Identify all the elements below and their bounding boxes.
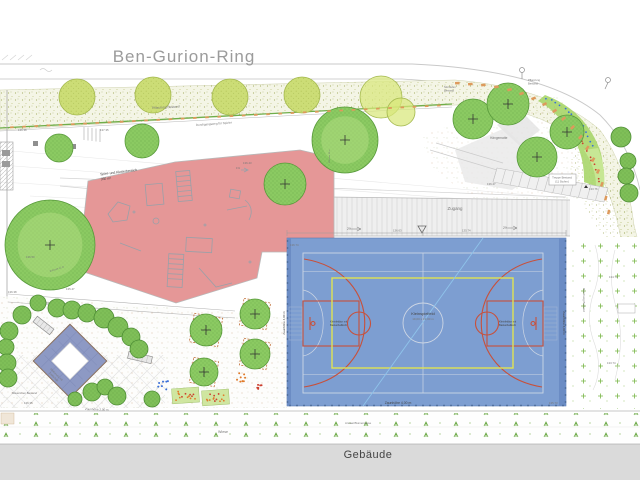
bush [30, 295, 46, 311]
haengematte-label: Hängematte [490, 136, 508, 140]
maeuerchen-label: Mäuerchen Bestand [12, 391, 37, 395]
svg-text:136.35: 136.35 [24, 401, 33, 405]
bush [68, 392, 82, 406]
slope-label-b: 2% [503, 226, 508, 230]
ansaat-label: Ansaat Blumenwiese [345, 421, 372, 425]
bush [0, 369, 17, 387]
south-meadow: Zaunhöhe 2,00 m Wiese Ansaat Blumenwiese [0, 407, 640, 442]
svg-text:136.38: 136.38 [8, 290, 17, 294]
bush [108, 387, 126, 405]
bush [620, 184, 638, 202]
svg-text:136.74: 136.74 [290, 243, 299, 247]
court-fence-right-label: Zaunhöhe 4,00 m [562, 311, 566, 335]
tree [387, 98, 415, 126]
svg-text:136.50: 136.50 [26, 255, 35, 259]
sports-court: Kleinspielfeld 19,00 x 13,00 m Kleinfeld… [282, 230, 566, 406]
east-meadow: Böschung Bestand [570, 237, 640, 409]
zaun2-label: Zaunhöhe 2,00 m [85, 407, 109, 412]
tree [550, 115, 584, 149]
svg-text:133.74: 133.74 [607, 361, 616, 365]
site-plan-page: Ben-Gurion-Ring Zugang 2% 2% [0, 0, 640, 480]
court-center-label: Kleinspielfeld [411, 311, 435, 316]
tree [5, 200, 95, 290]
bush [0, 322, 18, 340]
svg-text:134.74: 134.74 [609, 275, 618, 279]
tree [212, 79, 248, 115]
svg-text:135.47: 135.47 [66, 287, 75, 291]
building-label: Gebäude [344, 449, 393, 461]
goal-left-label-1: Kleinfeldtor mit [330, 320, 347, 324]
svg-text:137.35: 137.35 [100, 128, 109, 132]
svg-text:136.43: 136.43 [243, 161, 252, 165]
tree [312, 107, 378, 173]
site-plan-drawing: Ben-Gurion-Ring Zugang 2% 2% [0, 0, 640, 480]
court-dim-label: 19,00 x 13,00 m [412, 317, 434, 321]
street-name: Ben-Gurion-Ring [113, 47, 256, 66]
tree [264, 163, 306, 205]
tree [284, 77, 320, 113]
slope-label-a: 2% [347, 227, 352, 231]
svg-text:133.76: 133.76 [589, 187, 598, 191]
tree [517, 137, 557, 177]
goal-right-label-1: Kleinfeldtor mit [499, 320, 516, 324]
bush [144, 391, 160, 407]
svg-text:135.73: 135.73 [549, 401, 558, 405]
bush [618, 168, 634, 184]
goal-right-label-2: Basketballkorb [499, 323, 517, 327]
bush [0, 339, 14, 355]
krone-mid-label: Ø Krone 12 m [328, 149, 331, 163]
tree [59, 79, 95, 115]
weg-oben-label: Durchgangsweg für Spieler [196, 120, 232, 127]
svg-text:136.38: 136.38 [18, 128, 27, 132]
wiese-label: Wiese [218, 430, 228, 434]
tree [45, 134, 73, 162]
bush [78, 304, 96, 322]
building-band [0, 444, 640, 480]
court-fence-bottom-label: Zaunhöhe 4,00 m [385, 401, 412, 405]
svg-text:136.47: 136.47 [487, 182, 496, 186]
svg-text:135.74: 135.74 [462, 229, 471, 233]
sitzstufen-label-1: Sitzstufen [444, 85, 456, 89]
goal-left-label-2: Basketballkorb [330, 323, 348, 327]
svg-text:136.63: 136.63 [393, 229, 402, 233]
tree [125, 124, 159, 158]
sitzstufen-label-2: Bestand [444, 89, 454, 93]
bush [620, 153, 636, 169]
pflanzung-label-r2: Bestand [528, 82, 538, 86]
flower-bed [172, 387, 200, 404]
flower-bed [202, 389, 230, 406]
pflanzung-label-r1: Pflanzung [528, 78, 540, 82]
zugang-label: Zugang [448, 206, 463, 211]
bush [130, 340, 148, 358]
slope-label-c: 1% [236, 166, 241, 170]
court-fence-left-label: Zaunhöhe 4,00 m [282, 311, 286, 335]
boeschung-label: Böschung Bestand [582, 288, 586, 312]
treppe-label-2: (11 Stufen) [555, 180, 569, 184]
bush [13, 306, 31, 324]
bush [611, 127, 631, 147]
